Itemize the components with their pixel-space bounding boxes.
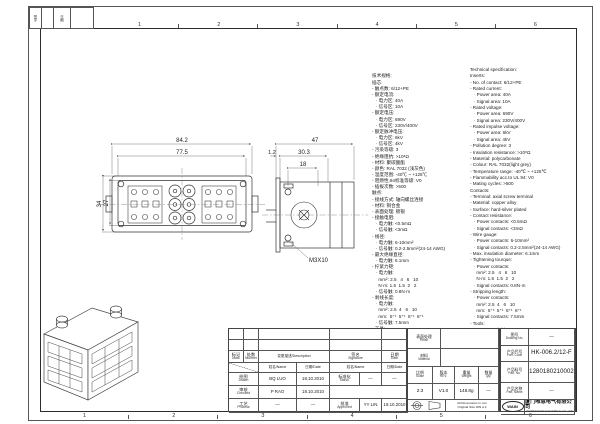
- company-logo: WAIN: [501, 400, 525, 415]
- screw-thread-label: M3X10: [309, 258, 329, 264]
- company-name-en: XIAMEN WAIN ELECTRICAL CO.,LTD: [526, 411, 572, 414]
- rev-label-en: REV.: [440, 375, 447, 378]
- note-line2: Original Size DIN A 4: [458, 406, 487, 410]
- scale-label: 比例 Scale: [408, 367, 433, 384]
- corner-revision-table: 签字 日期: [29, 7, 94, 29]
- zone-number: 2: [179, 6, 258, 28]
- part-name-label: 产品名称 Part. Name: [501, 383, 529, 400]
- rev-value-text: V1.0: [439, 389, 448, 394]
- material-label: 材料 Material: [408, 349, 441, 367]
- approved-name: YY LIN: [360, 399, 382, 413]
- role-process: 工艺 Process: [229, 399, 259, 413]
- rev-empty-cell: [330, 340, 382, 351]
- subheader-name: 姓名/Name: [259, 363, 297, 373]
- drawing-no-label: 图号 Drawing No.: [501, 329, 529, 346]
- front-dimension-lines: [102, 144, 252, 232]
- scale-label-en: Scale: [416, 375, 424, 378]
- header-signature: 签名 Signature: [330, 351, 382, 363]
- rev-empty-cell: [244, 329, 259, 340]
- role-checked: 审核 Checked: [229, 386, 259, 399]
- dimension-note: All Dimensions in mm Original Size DIN A…: [446, 400, 499, 412]
- side-view-drawing: 47 1.2 30.3 18 M3X10: [258, 134, 374, 266]
- header-number-en: Number: [245, 357, 257, 361]
- rev-empty-cell: [330, 329, 382, 340]
- approved-date: 18.10.2010: [382, 399, 408, 413]
- role-stand-en: Stand.: [340, 379, 350, 383]
- qty-value-text: —: [486, 389, 491, 394]
- drawing-no-label-en: Drawing No.: [506, 337, 524, 340]
- subheader-date: 日期/Date: [382, 363, 408, 373]
- role-approved: 批准 Approved: [330, 399, 360, 413]
- corner-cell-date: 日期: [54, 8, 71, 28]
- corner-cell-signature: 签字: [30, 8, 42, 28]
- role-approved-en: Approved: [337, 406, 352, 410]
- header-mark: 标记 Mark: [229, 351, 244, 363]
- weight-label-en: Weight: [462, 375, 472, 378]
- zone-number: 1: [100, 6, 179, 28]
- part-code-label-en: Part. Code: [507, 354, 522, 357]
- dim-27: 27: [104, 199, 110, 206]
- finish-value: [441, 329, 499, 349]
- zone-strip-top: 123456: [100, 6, 575, 28]
- company-name: 厦门唯恩电气有限公司 XIAMEN WAIN ELECTRICAL CO.,LT…: [525, 400, 575, 415]
- dim-77-5: 77.5: [176, 150, 188, 156]
- finish-label: 表面处理 Finish: [408, 329, 441, 349]
- part-code-value: HK-006.2/12-F: [529, 346, 575, 362]
- checked-name: P RAO: [259, 386, 297, 399]
- header-signature-en: Signature: [348, 357, 363, 361]
- role-checked-en: Checked: [237, 392, 250, 396]
- dim-47: 47: [312, 138, 319, 144]
- isometric-view-drawing: [30, 288, 152, 410]
- role-process-en: Process: [237, 406, 249, 410]
- part-no-label: 产品料号 Part. No.: [501, 362, 529, 383]
- part-name-value: —: [529, 383, 575, 400]
- rev-value: V1.0: [433, 384, 455, 400]
- side-dimension-lines: [270, 144, 354, 186]
- process-name: —: [259, 399, 297, 413]
- dim-18: 18: [300, 162, 307, 168]
- header-date-en: Date: [391, 357, 398, 361]
- iso-body: [44, 306, 138, 400]
- header-number: 处数 Number: [244, 351, 259, 363]
- zone-number: 5: [417, 6, 496, 28]
- first-angle-projection-icon: [410, 400, 444, 411]
- spec-text-en: Technical specification:Inserts:- No. of…: [470, 48, 560, 333]
- screw-leader-line: [290, 242, 308, 258]
- stand-name: —: [360, 373, 382, 386]
- stand-date: —: [382, 373, 408, 386]
- role-stand: 标准化 Stand.: [330, 373, 360, 386]
- role-drawn: 绘图 Drawn: [229, 373, 259, 386]
- drawing-no-value-text: —: [549, 335, 554, 340]
- dim-34: 34: [97, 200, 103, 207]
- part-no-value-text: 1280180210002: [529, 369, 574, 375]
- rev-empty-cell: [259, 329, 330, 340]
- qty-label-en: Qty.: [486, 375, 492, 378]
- zone-number: 2: [129, 410, 218, 419]
- rev-empty-cell: [229, 340, 244, 351]
- dim-1-2: 1.2: [268, 150, 276, 156]
- part-name-label-en: Part. Name: [506, 391, 522, 394]
- zone-number: 1: [40, 410, 129, 419]
- part-no-label-en: Part. No.: [508, 372, 521, 375]
- scale-value: 2:3: [408, 384, 433, 400]
- header-date: 日期 Date: [382, 351, 408, 363]
- rev-label: 版本 REV.: [433, 367, 455, 384]
- wain-logo: WAIN: [502, 401, 524, 412]
- diagonal-cell: [229, 363, 259, 373]
- front-view-drawing: 84.2 77.5 34 27: [96, 134, 268, 258]
- material-label-en: Material: [418, 358, 429, 361]
- spec-text-zh: 技术规格:插芯:- 触点数: 6/12+PE- 额定电流: · 电力区: 40A…: [372, 55, 445, 338]
- part-name-value-text: —: [549, 389, 554, 394]
- spec-line: - Temperature range: -40℃ ~ +125℃: [470, 169, 560, 175]
- weight-label: 重量 Weight: [455, 367, 479, 384]
- qty-label: 数量 Qty.: [479, 367, 499, 384]
- dim-30-3: 30.3: [298, 150, 310, 156]
- weight-value-text: 148.8g: [459, 389, 473, 394]
- engineering-drawing-sheet: 123456 123456 签字 日期 84.2 77.5 34 27: [0, 0, 600, 424]
- material-scale-block: 表面处理 Finish 材料 Material 比例 Scale 版本: [407, 328, 500, 412]
- empty-cell: [330, 386, 408, 399]
- scale-value-text: 2:3: [417, 389, 423, 394]
- corner-cell-empty: [71, 8, 93, 28]
- signature-table: 标记 Mark 处数 Number 变更描述/Description 签名 Si…: [228, 328, 407, 412]
- checked-date: 18.10.2010: [297, 386, 330, 399]
- subheader-name: 姓名/Name: [330, 363, 382, 373]
- qty-value: —: [479, 384, 499, 400]
- zone-number: 4: [338, 6, 417, 28]
- finish-label-en: Finish: [420, 339, 429, 342]
- rev-empty-cell: [382, 329, 408, 340]
- part-no-value: 1280180210002: [529, 362, 575, 383]
- header-mark-en: Mark: [232, 357, 240, 361]
- rev-empty-cell: [244, 340, 259, 351]
- corner-cell-empty: [42, 8, 54, 28]
- rev-empty-cell: [382, 340, 408, 351]
- part-code-value-text: HK-006.2/12-F: [531, 350, 572, 356]
- weight-value: 148.8g: [455, 384, 479, 400]
- dim-84-2: 84.2: [176, 138, 188, 144]
- subheader-date: 日期/Date: [297, 363, 330, 373]
- rev-empty-cell: [259, 340, 330, 351]
- role-drawn-en: Drawn: [239, 379, 249, 383]
- drawn-name: BQ LUO: [259, 373, 297, 386]
- rev-empty-cell: [229, 329, 244, 340]
- part-code-label: 产品代号 Part. Code: [501, 346, 529, 362]
- title-block: 图号 Drawing No. — 产品代号 Part. Code HK-006.…: [500, 328, 576, 412]
- zone-number: 3: [258, 6, 337, 28]
- zone-number: 6: [496, 6, 575, 28]
- drawn-date: 18.10.2010: [297, 373, 330, 386]
- projection-symbol: [408, 400, 446, 412]
- material-value: [441, 349, 499, 367]
- front-centerlines: [98, 168, 266, 240]
- process-date: —: [297, 399, 330, 413]
- drawing-no-value: —: [529, 329, 575, 346]
- header-description: 变更描述/Description: [259, 351, 330, 363]
